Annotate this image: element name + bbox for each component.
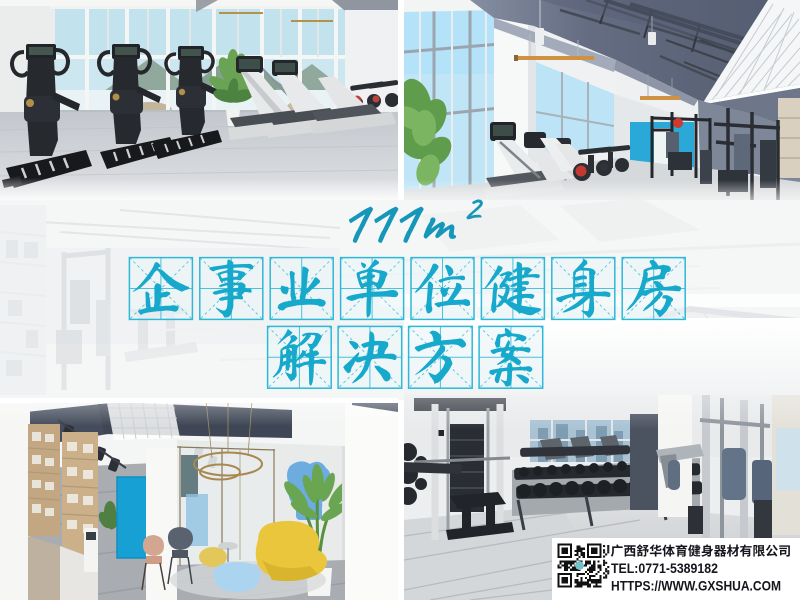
svg-text:TEL:0771-5389182: TEL:0771-5389182 (611, 560, 718, 576)
svg-text:HTTPS://WWW.GXSHUA.COM: HTTPS://WWW.GXSHUA.COM (611, 579, 781, 594)
